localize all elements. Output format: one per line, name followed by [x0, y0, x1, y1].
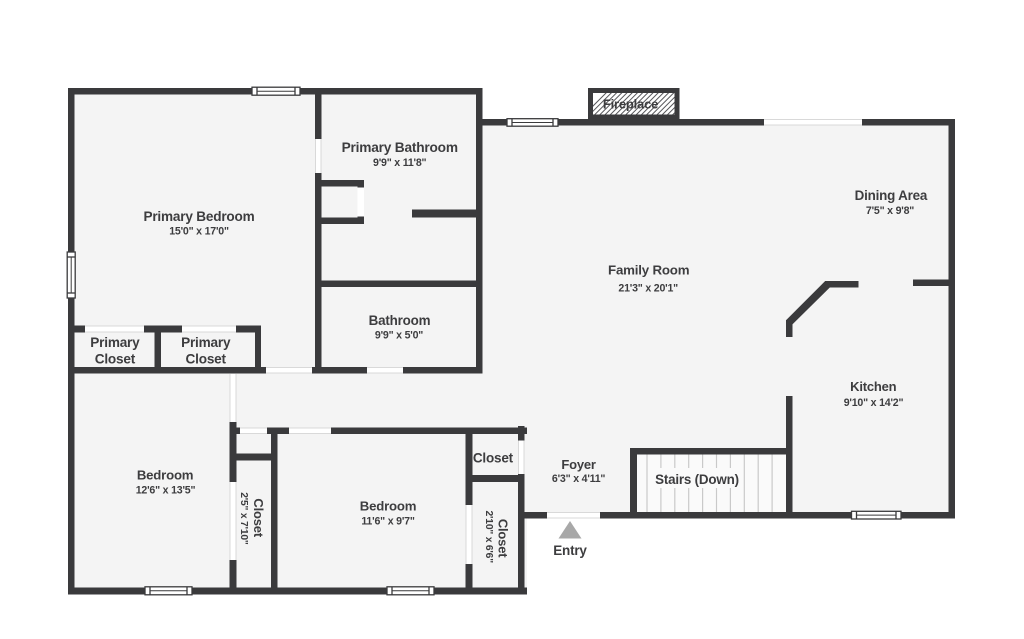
svg-text:Kitchen: Kitchen	[850, 379, 897, 394]
svg-text:Closet: Closet	[495, 519, 510, 558]
svg-text:7'5" x 9'8": 7'5" x 9'8"	[866, 205, 914, 217]
svg-text:Closet: Closet	[186, 352, 227, 367]
svg-text:Primary: Primary	[181, 335, 231, 350]
svg-text:21'3" x 20'1": 21'3" x 20'1"	[618, 283, 678, 295]
svg-text:Closet: Closet	[95, 352, 136, 367]
svg-text:9'9" x 5'0": 9'9" x 5'0"	[375, 330, 423, 342]
svg-text:Primary Bathroom: Primary Bathroom	[342, 140, 458, 155]
svg-text:Bedroom: Bedroom	[360, 499, 416, 514]
svg-text:Stairs (Down): Stairs (Down)	[655, 472, 739, 487]
svg-text:Closet: Closet	[473, 451, 514, 466]
svg-text:Family Room: Family Room	[608, 263, 689, 278]
svg-text:2'10" x 6'6": 2'10" x 6'6"	[483, 511, 494, 564]
svg-text:Fireplace: Fireplace	[603, 97, 658, 112]
svg-text:9'9" x 11'8": 9'9" x 11'8"	[373, 157, 427, 169]
svg-text:9'10" x 14'2": 9'10" x 14'2"	[844, 397, 904, 409]
svg-text:Dining Area: Dining Area	[855, 188, 928, 203]
svg-text:Closet: Closet	[251, 498, 266, 537]
svg-text:Foyer: Foyer	[561, 457, 596, 472]
svg-text:6'3" x 4'11": 6'3" x 4'11"	[552, 473, 606, 485]
svg-text:Bedroom: Bedroom	[137, 468, 193, 483]
svg-text:Entry: Entry	[553, 543, 587, 558]
svg-text:11'6" x 9'7": 11'6" x 9'7"	[361, 516, 415, 528]
svg-text:Primary: Primary	[90, 335, 140, 350]
svg-text:2'5" x 7'10": 2'5" x 7'10"	[238, 492, 249, 545]
svg-text:12'6" x 13'5": 12'6" x 13'5"	[136, 485, 196, 497]
svg-text:15'0" x 17'0": 15'0" x 17'0"	[169, 226, 229, 238]
svg-text:Bathroom: Bathroom	[369, 313, 431, 328]
svg-text:Primary Bedroom: Primary Bedroom	[143, 209, 254, 224]
